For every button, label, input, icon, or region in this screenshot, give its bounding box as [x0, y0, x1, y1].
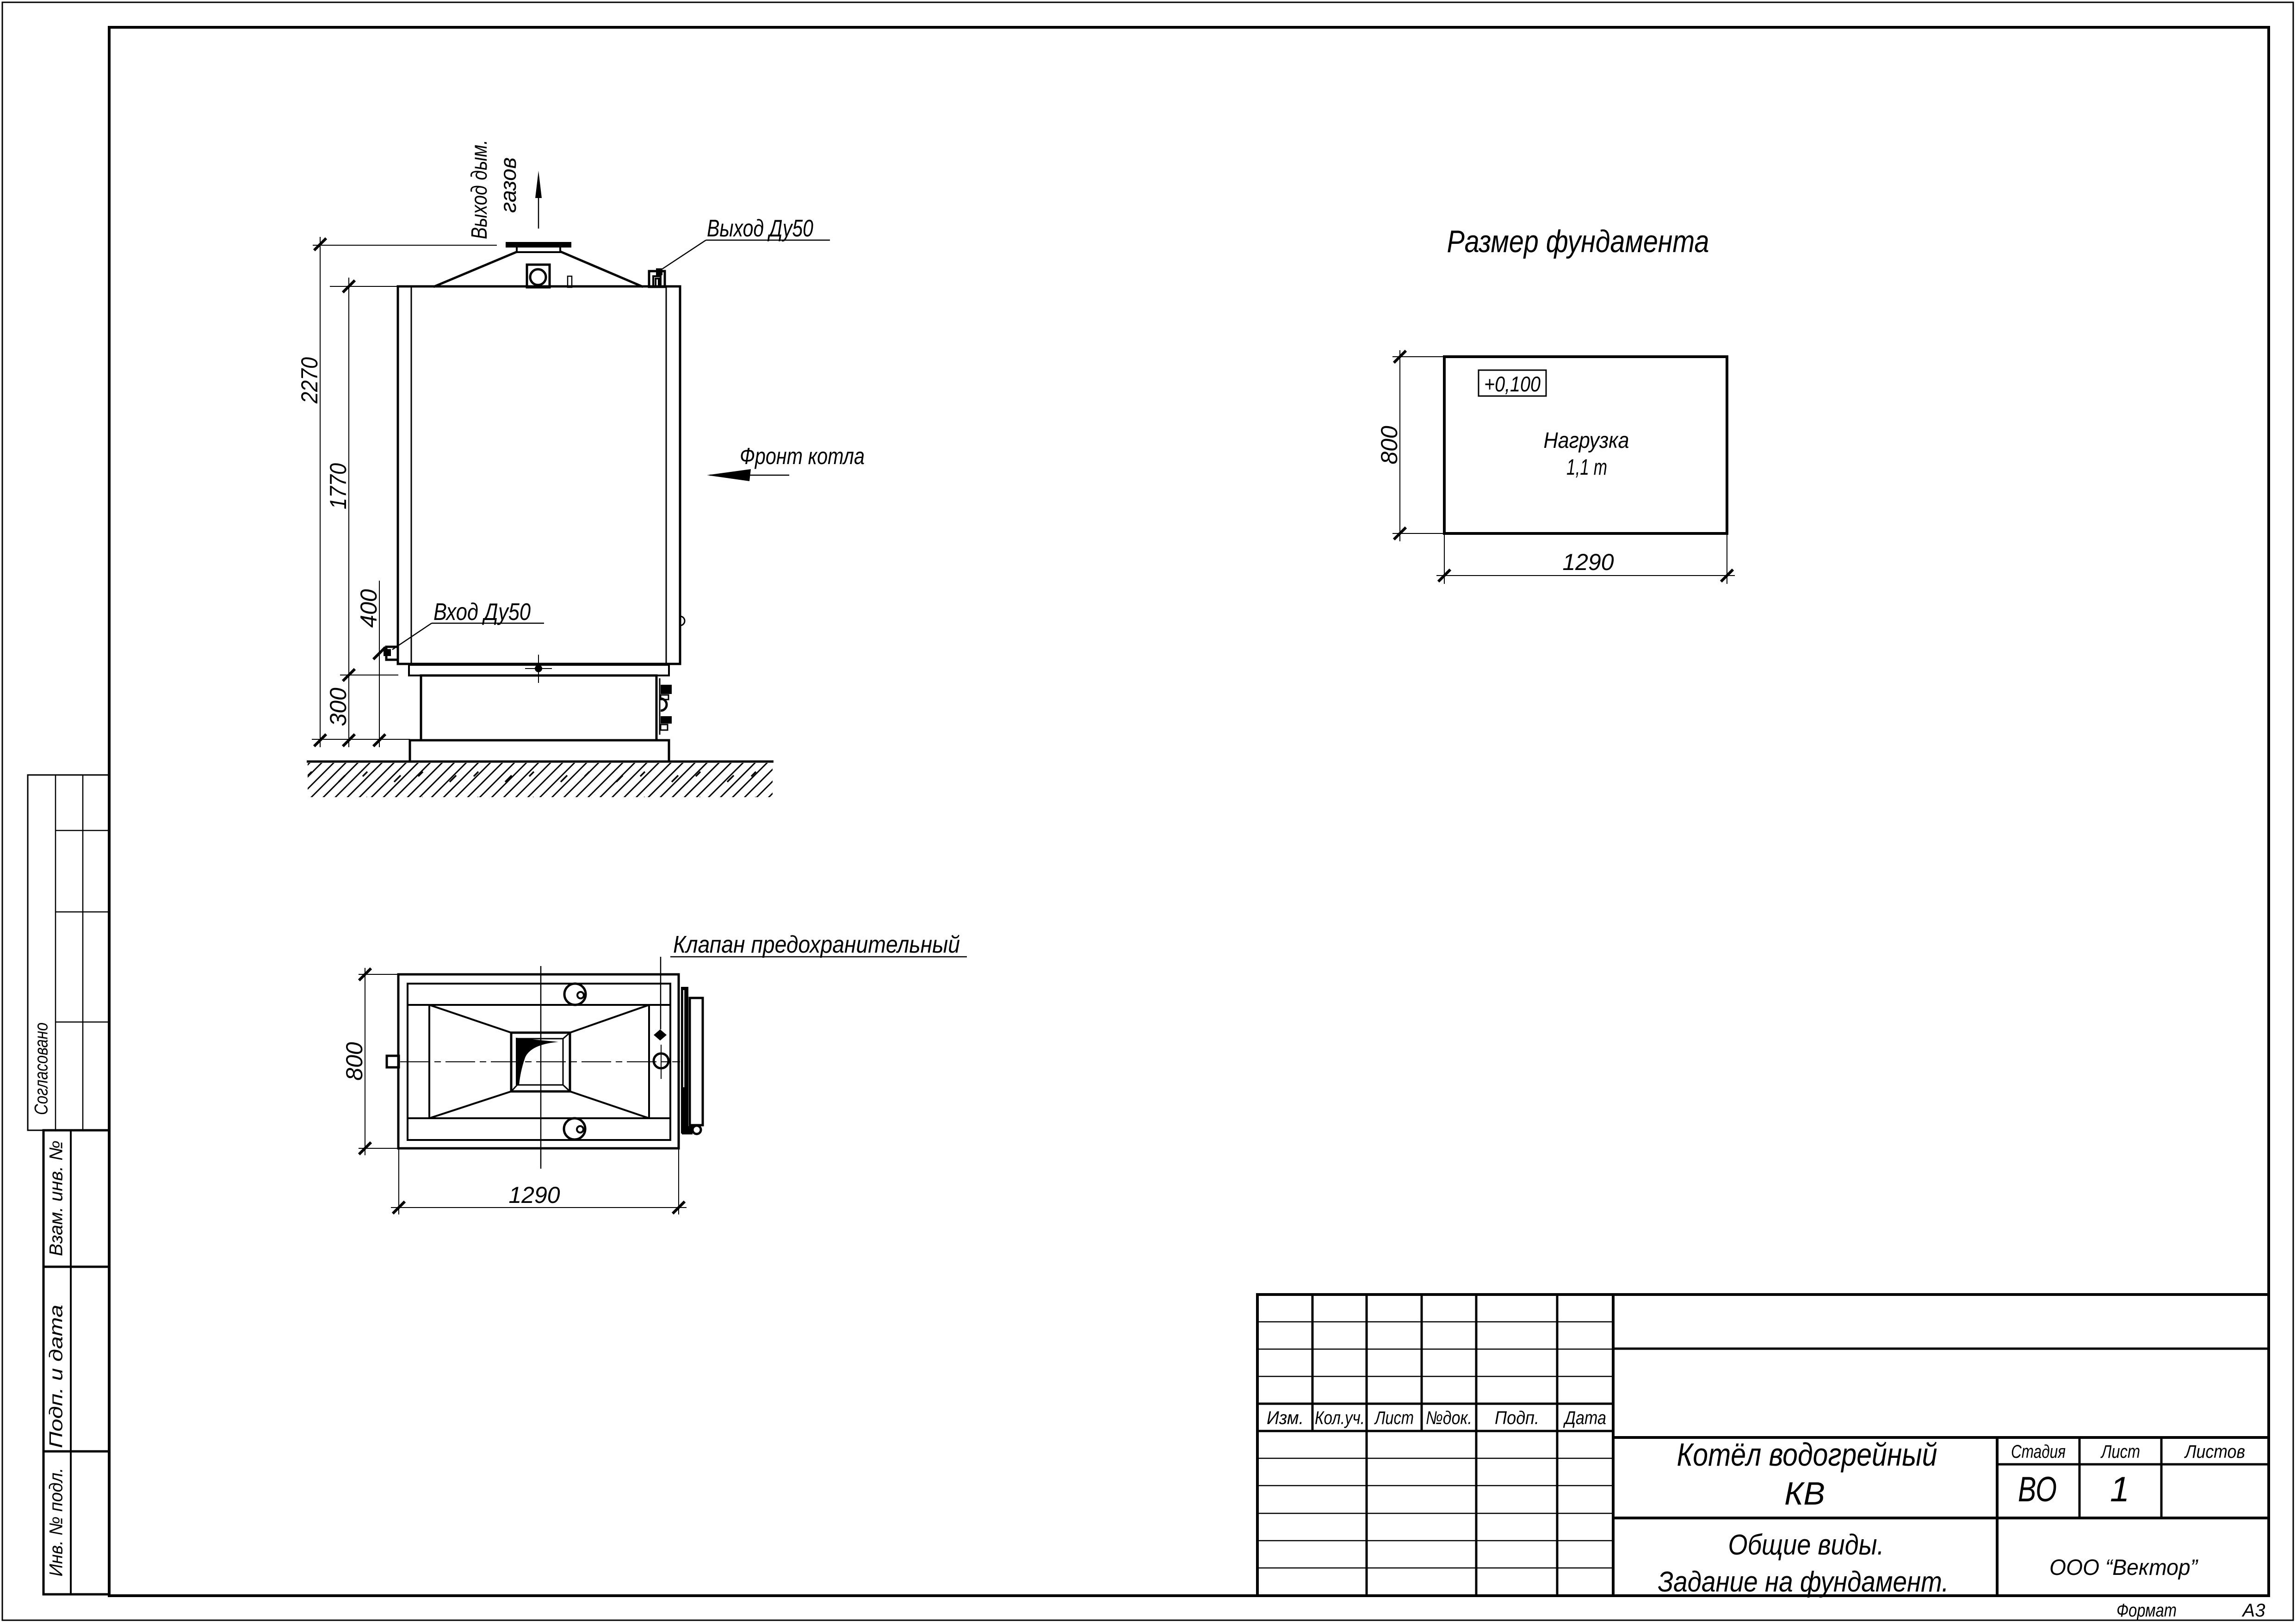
svg-text:Нагрузка: Нагрузка — [1544, 428, 1629, 453]
svg-text:Выход Ду50: Выход Ду50 — [707, 215, 813, 242]
svg-text:Подп. и дата: Подп. и дата — [46, 1305, 67, 1448]
svg-text:Дата: Дата — [1563, 1408, 1606, 1428]
svg-text:800: 800 — [1376, 426, 1402, 465]
svg-text:ВО: ВО — [2018, 1470, 2057, 1509]
svg-text:Стадия: Стадия — [2011, 1442, 2066, 1462]
svg-text:1,1 т: 1,1 т — [1566, 455, 1607, 480]
svg-text:Вход Ду50: Вход Ду50 — [433, 599, 531, 626]
svg-text:Общие виды.: Общие виды. — [1728, 1529, 1884, 1561]
svg-text:Котёл водогрейный: Котёл водогрейный — [1677, 1437, 1937, 1473]
svg-text:1290: 1290 — [1562, 549, 1614, 575]
svg-text:Изм.: Изм. — [1267, 1408, 1304, 1428]
svg-text:газов: газов — [496, 157, 521, 213]
svg-text:А3: А3 — [2242, 1600, 2265, 1621]
svg-text:Согласовано: Согласовано — [31, 1022, 52, 1115]
svg-text:2270: 2270 — [297, 357, 322, 404]
svg-text:Инв. № подл.: Инв. № подл. — [46, 1468, 67, 1577]
svg-text:Листов: Листов — [2184, 1442, 2245, 1462]
svg-text:Подп.: Подп. — [1495, 1408, 1539, 1428]
svg-text:1: 1 — [2110, 1470, 2129, 1509]
svg-text:Размер фундамента: Размер фундамента — [1447, 224, 1709, 259]
svg-text:Клапан предохранительный: Клапан предохранительный — [673, 931, 960, 958]
svg-text:Взам. инв. №: Взам. инв. № — [46, 1140, 67, 1256]
svg-text:ООО “Вектор”: ООО “Вектор” — [2049, 1555, 2198, 1580]
svg-text:Формат: Формат — [2117, 1600, 2177, 1621]
svg-text:Кол.уч.: Кол.уч. — [1315, 1408, 1365, 1428]
svg-text:800: 800 — [341, 1042, 367, 1081]
svg-text:№док.: №док. — [1426, 1408, 1472, 1428]
svg-text:КВ: КВ — [1784, 1475, 1825, 1511]
svg-text:Выход дым.: Выход дым. — [467, 140, 492, 239]
svg-text:+0,100: +0,100 — [1484, 372, 1541, 396]
svg-text:400: 400 — [356, 589, 382, 628]
svg-text:Лист: Лист — [2100, 1442, 2140, 1462]
svg-text:Фронт котла: Фронт котла — [740, 443, 865, 469]
svg-text:Лист: Лист — [1374, 1408, 1414, 1428]
svg-text:1770: 1770 — [325, 463, 351, 509]
svg-text:300: 300 — [325, 688, 351, 726]
svg-text:Задание на фундамент.: Задание на фундамент. — [1658, 1566, 1949, 1598]
svg-text:1290: 1290 — [508, 1182, 560, 1208]
